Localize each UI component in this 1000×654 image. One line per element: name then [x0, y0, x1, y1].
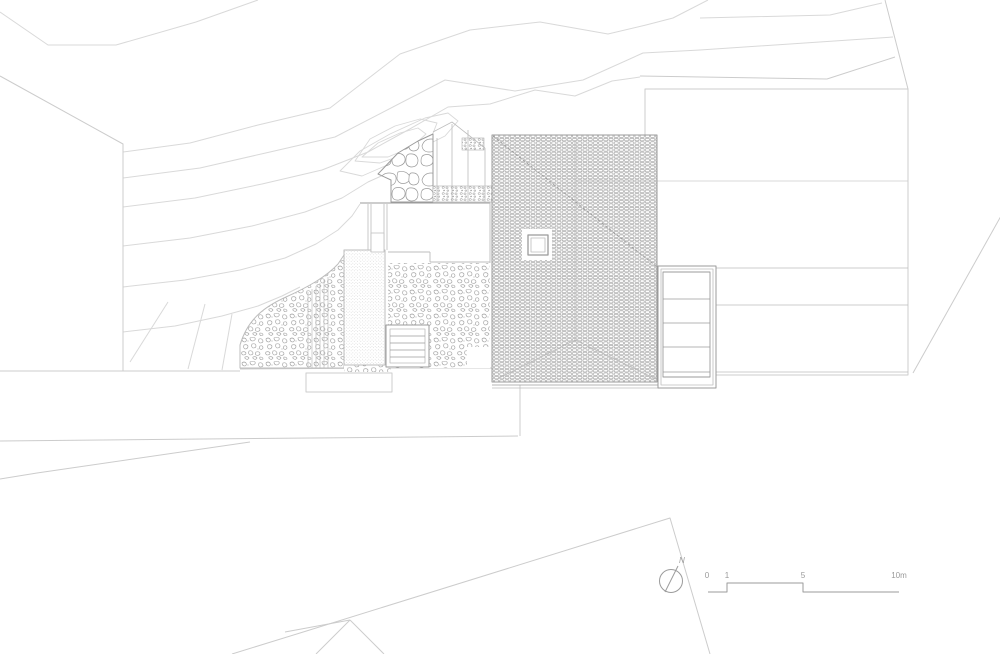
site-boundary-line	[640, 57, 895, 79]
north-label: N	[679, 556, 685, 565]
site-boundary-line	[885, 0, 908, 89]
stone-paving-left	[240, 255, 344, 368]
stairs-outer	[386, 325, 429, 367]
site-plan: N01510m	[0, 0, 1000, 654]
contour-line	[700, 3, 882, 18]
plot-line	[232, 518, 710, 654]
contour-line	[123, 0, 708, 152]
plot-line	[350, 620, 384, 654]
road-edge-line	[0, 442, 250, 479]
pergola-outer	[658, 266, 716, 388]
stone-strip	[344, 365, 385, 372]
door-rect	[371, 233, 384, 252]
road-edge-line	[0, 436, 518, 441]
gravel-strip	[462, 138, 484, 150]
site-plan-svg: N01510m	[0, 0, 1000, 654]
paving-mask	[467, 347, 490, 368]
contour-line	[188, 304, 205, 369]
terrace-step	[306, 373, 392, 392]
plastered-tower	[344, 250, 385, 365]
scale-bar-line	[708, 583, 899, 592]
site-boundary-line	[0, 76, 123, 371]
contour-line	[123, 204, 360, 287]
contour-line	[222, 314, 232, 370]
site-boundary-line	[913, 216, 1000, 373]
scale-label-10m: 10m	[891, 571, 907, 580]
scale-label-1: 1	[725, 571, 730, 580]
scale-label-0: 0	[705, 571, 710, 580]
gravel-strip	[433, 186, 492, 202]
contour-line	[123, 173, 388, 246]
scale-label-5: 5	[801, 571, 806, 580]
roof-tiles	[492, 135, 657, 382]
contour-line	[130, 302, 168, 362]
contour-line	[0, 0, 258, 45]
rubble-wall	[378, 134, 433, 202]
